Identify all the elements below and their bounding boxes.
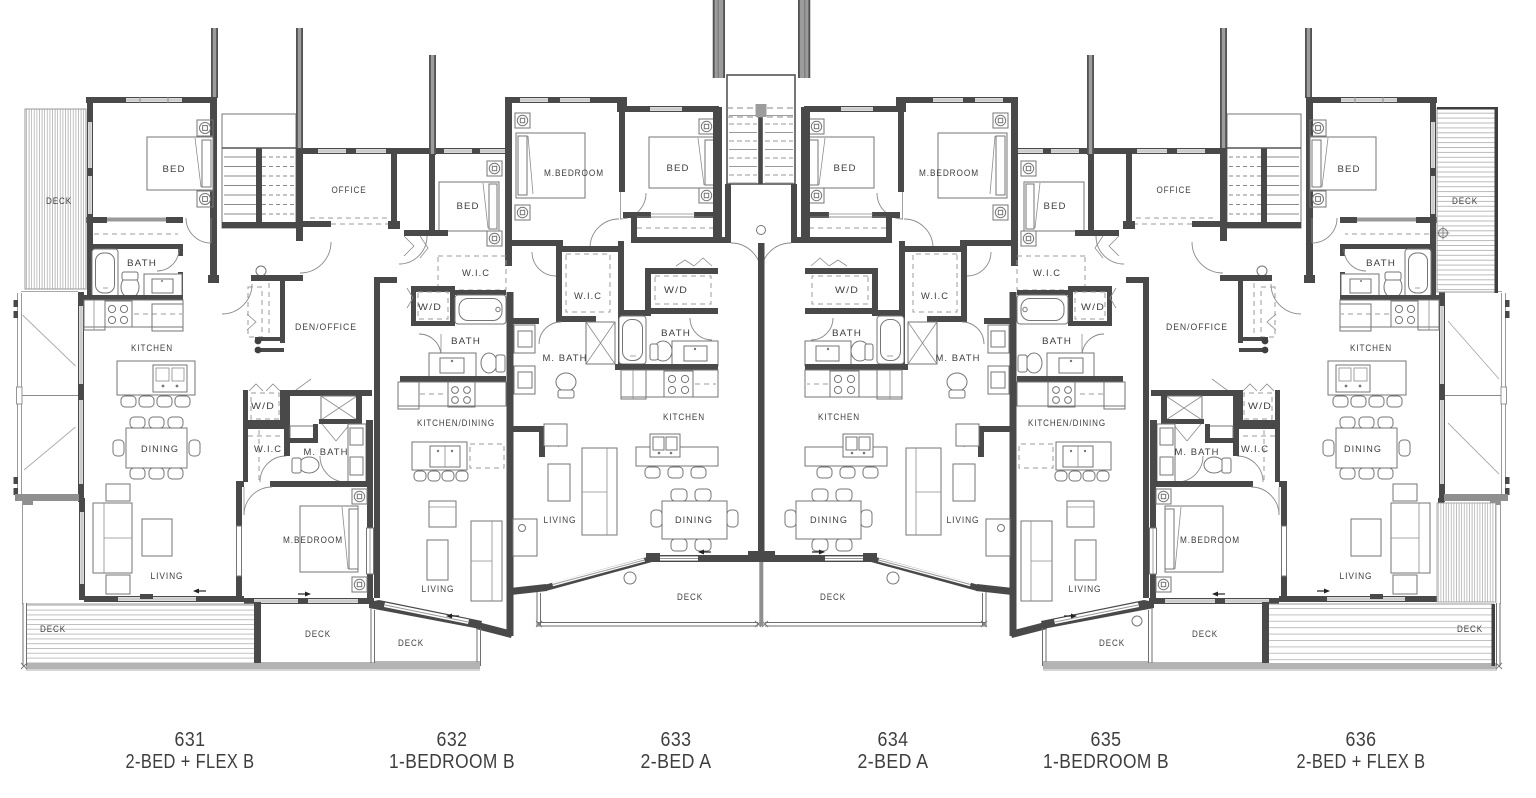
svg-text:DECK: DECK [1099, 638, 1125, 648]
svg-text:M.BEDROOM: M.BEDROOM [919, 168, 979, 178]
svg-text:DECK: DECK [305, 629, 331, 639]
svg-text:W.I.C: W.I.C [574, 291, 602, 301]
svg-text:BATH: BATH [832, 328, 862, 338]
svg-text:KITCHEN: KITCHEN [818, 412, 860, 422]
svg-text:M. BATH: M. BATH [1175, 447, 1220, 457]
svg-text:DECK: DECK [398, 638, 424, 648]
svg-text:BATH: BATH [1366, 258, 1396, 268]
svg-text:OFFICE: OFFICE [1157, 185, 1192, 195]
svg-text:DECK: DECK [820, 592, 846, 602]
svg-text:LIVING: LIVING [1340, 571, 1373, 581]
svg-text:KITCHEN/DINING: KITCHEN/DINING [417, 418, 495, 428]
svg-text:DECK: DECK [46, 196, 72, 206]
svg-text:DEN/OFFICE: DEN/OFFICE [295, 322, 357, 332]
svg-text:M.BEDROOM: M.BEDROOM [283, 535, 343, 545]
svg-text:2-BED + FLEX B: 2-BED + FLEX B [126, 750, 255, 773]
svg-text:BED: BED [1338, 164, 1361, 174]
svg-text:W.I.C: W.I.C [1241, 444, 1269, 454]
svg-text:DECK: DECK [40, 624, 66, 634]
svg-text:BED: BED [834, 163, 857, 173]
svg-text:W/D: W/D [418, 302, 442, 312]
svg-text:BATH: BATH [661, 328, 691, 338]
svg-text:DINING: DINING [810, 515, 848, 525]
svg-text:635: 635 [1091, 728, 1122, 751]
svg-text:W/D: W/D [1081, 302, 1105, 312]
svg-text:W.I.C: W.I.C [1033, 268, 1061, 278]
svg-text:DEN/OFFICE: DEN/OFFICE [1166, 322, 1228, 332]
svg-text:DECK: DECK [677, 592, 703, 602]
svg-text:OFFICE: OFFICE [332, 185, 367, 195]
svg-text:W.I.C: W.I.C [254, 444, 282, 454]
svg-text:KITCHEN: KITCHEN [663, 412, 705, 422]
svg-text:BATH: BATH [1042, 336, 1072, 346]
svg-text:W/D: W/D [664, 285, 688, 295]
svg-text:BED: BED [667, 163, 690, 173]
svg-text:BED: BED [163, 164, 186, 174]
svg-text:M.BEDROOM: M.BEDROOM [544, 168, 604, 178]
svg-text:KITCHEN: KITCHEN [1350, 343, 1392, 353]
svg-text:LIVING: LIVING [422, 584, 455, 594]
svg-text:632: 632 [437, 728, 468, 751]
svg-text:W/D: W/D [251, 401, 275, 411]
svg-text:BATH: BATH [127, 258, 157, 268]
svg-text:2-BED A: 2-BED A [858, 750, 929, 773]
svg-text:LIVING: LIVING [151, 571, 184, 581]
svg-text:KITCHEN/DINING: KITCHEN/DINING [1028, 418, 1106, 428]
svg-text:DECK: DECK [1452, 196, 1478, 206]
svg-text:1-BEDROOM B: 1-BEDROOM B [389, 750, 515, 773]
svg-text:W/D: W/D [1248, 401, 1272, 411]
svg-text:DECK: DECK [1192, 629, 1218, 639]
svg-text:634: 634 [878, 728, 909, 751]
svg-text:M.BEDROOM: M.BEDROOM [1180, 535, 1240, 545]
svg-text:2-BED + FLEX B: 2-BED + FLEX B [1297, 750, 1426, 773]
svg-text:M. BATH: M. BATH [936, 353, 981, 363]
svg-text:KITCHEN: KITCHEN [131, 343, 173, 353]
svg-text:BED: BED [457, 201, 480, 211]
svg-text:LIVING: LIVING [947, 515, 980, 525]
svg-text:BED: BED [1044, 201, 1067, 211]
svg-text:LIVING: LIVING [1069, 584, 1102, 594]
svg-text:DINING: DINING [675, 515, 713, 525]
svg-text:M. BATH: M. BATH [543, 353, 588, 363]
svg-text:DECK: DECK [1457, 624, 1483, 634]
svg-text:W.I.C: W.I.C [921, 291, 949, 301]
svg-text:M. BATH: M. BATH [304, 447, 349, 457]
svg-text:633: 633 [661, 728, 692, 751]
svg-text:W.I.C: W.I.C [462, 268, 490, 278]
svg-text:W/D: W/D [835, 285, 859, 295]
svg-text:DINING: DINING [141, 444, 179, 454]
svg-text:631: 631 [175, 728, 206, 751]
svg-text:LIVING: LIVING [544, 515, 577, 525]
svg-text:BATH: BATH [451, 336, 481, 346]
svg-text:1-BEDROOM B: 1-BEDROOM B [1043, 750, 1169, 773]
svg-text:2-BED A: 2-BED A [641, 750, 712, 773]
svg-text:DINING: DINING [1344, 444, 1382, 454]
svg-text:636: 636 [1346, 728, 1377, 751]
